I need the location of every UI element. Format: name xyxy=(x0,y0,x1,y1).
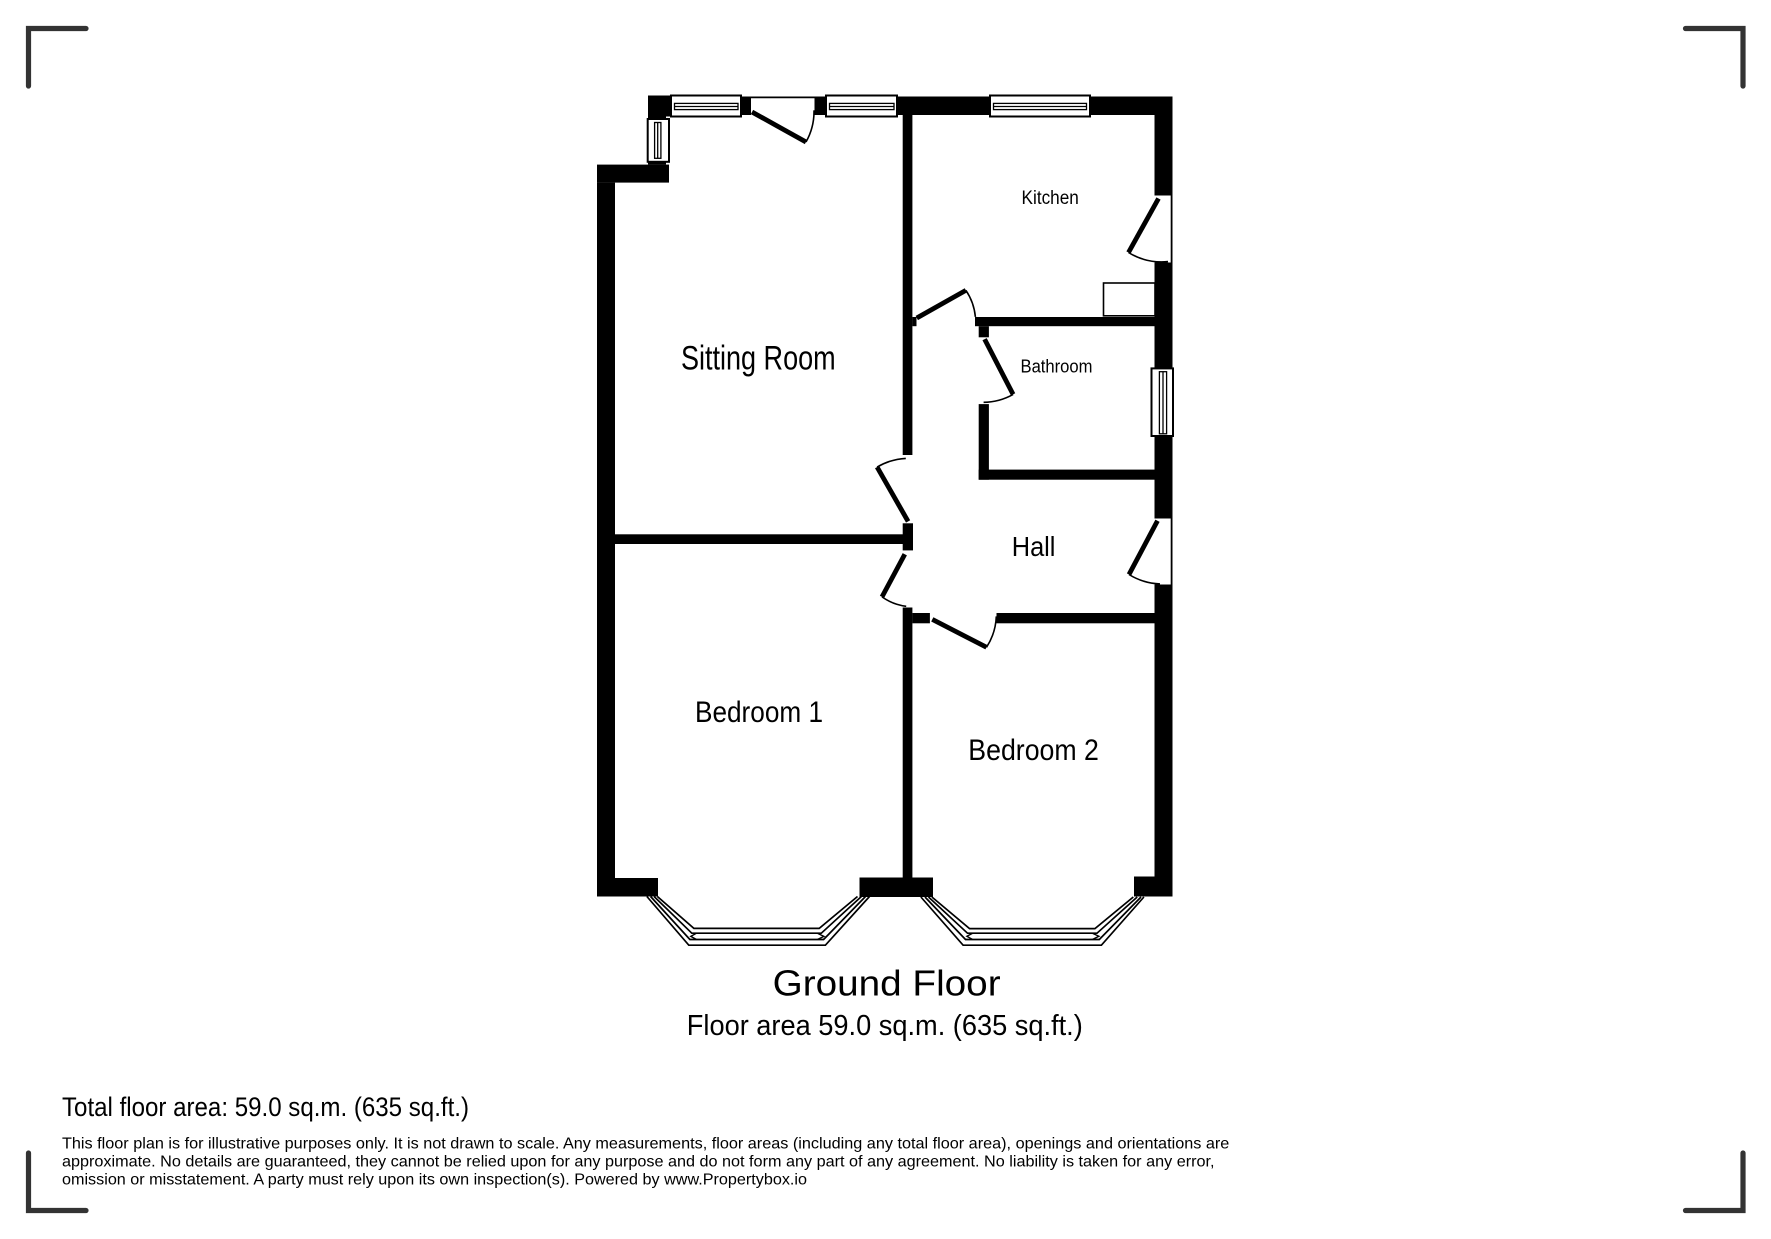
svg-text:omission or misstatement. A pa: omission or misstatement. A party must r… xyxy=(62,1171,807,1188)
svg-text:This floor plan is for illustr: This floor plan is for illustrative purp… xyxy=(62,1136,1230,1153)
svg-text:Kitchen: Kitchen xyxy=(1022,187,1079,209)
svg-text:approximate. No details are gu: approximate. No details are guaranteed, … xyxy=(62,1154,1214,1171)
svg-text:Total floor area: 59.0 sq.m. (: Total floor area: 59.0 sq.m. (635 sq.ft.… xyxy=(62,1092,469,1122)
svg-text:Ground Floor: Ground Floor xyxy=(773,962,1001,1003)
svg-text:Hall: Hall xyxy=(1012,530,1056,562)
svg-text:Floor area 59.0 sq.m. (635 sq.: Floor area 59.0 sq.m. (635 sq.ft.) xyxy=(687,1010,1083,1042)
svg-text:Bathroom: Bathroom xyxy=(1021,356,1093,377)
svg-text:Sitting Room: Sitting Room xyxy=(681,340,836,378)
svg-text:Bedroom 2: Bedroom 2 xyxy=(968,735,1099,767)
svg-text:Bedroom 1: Bedroom 1 xyxy=(695,697,823,729)
